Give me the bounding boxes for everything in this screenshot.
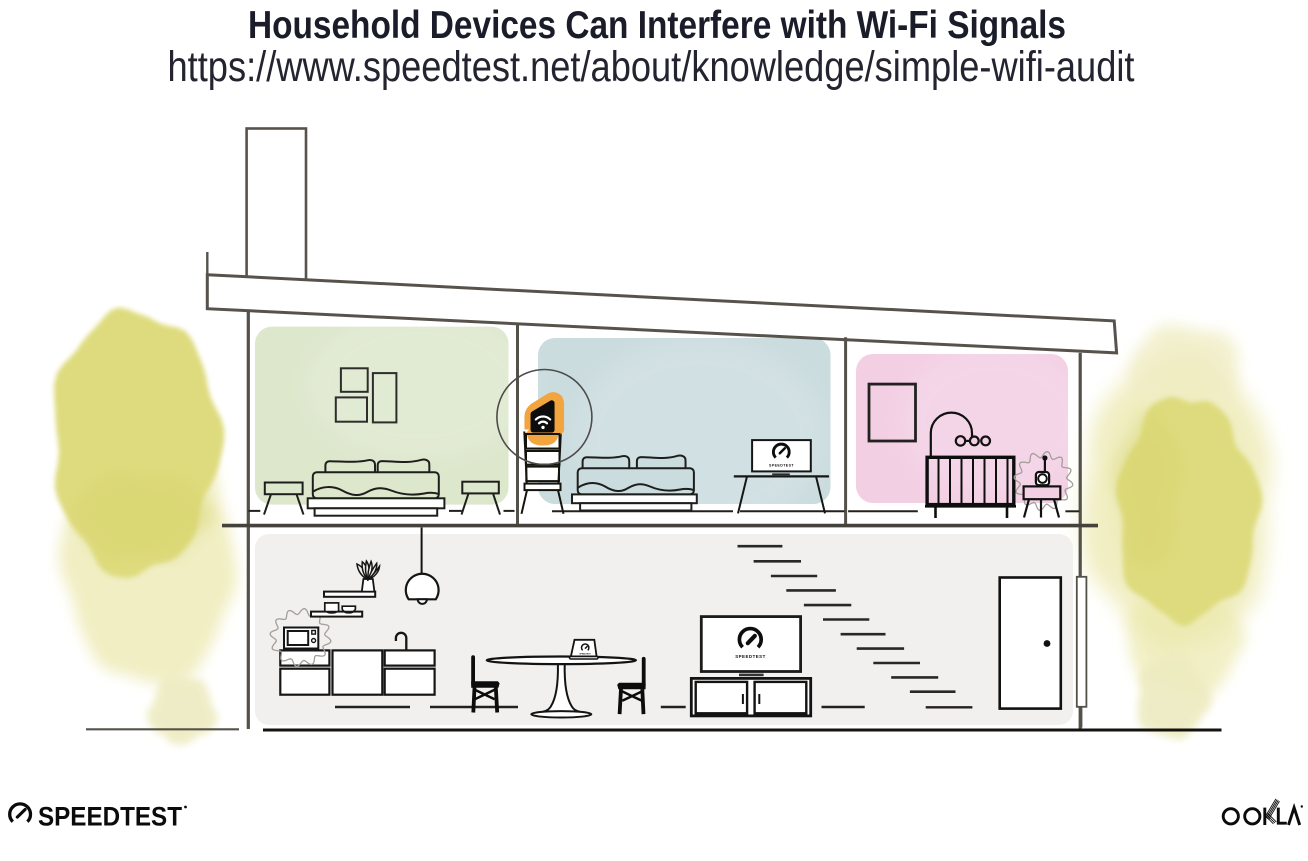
svg-text:SPEEDTEST: SPEEDTEST — [579, 654, 591, 656]
svg-text:SPEEDTEST: SPEEDTEST — [38, 802, 182, 832]
svg-text:SPEEDTEST: SPEEDTEST — [735, 654, 766, 659]
svg-text:https://www.speedtest.net/abou: https://www.speedtest.net/about/knowledg… — [168, 43, 1135, 91]
svg-text:SPEEDTEST: SPEEDTEST — [769, 464, 794, 468]
svg-text:Household Devices Can Interfer: Household Devices Can Interfere with Wi-… — [248, 4, 1066, 47]
